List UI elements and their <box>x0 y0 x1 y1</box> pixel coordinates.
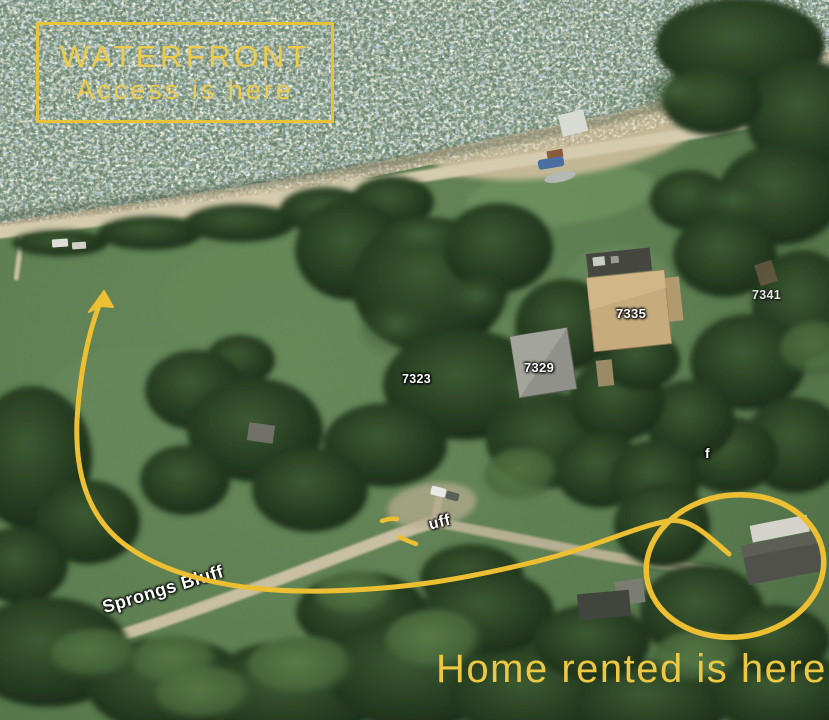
parked-trailer <box>52 238 69 247</box>
waterfront-annotation-box: WATERFRONT Access is here <box>36 22 334 123</box>
waterfront-label-line1: WATERFRONT <box>60 41 310 74</box>
home-rented-label: Home rented is here <box>436 647 827 692</box>
house-7329 <box>510 328 577 398</box>
parked-car <box>72 242 86 250</box>
satellite-map: Sprongs Bluff uff f 7335 7341 7323 7329 … <box>0 0 829 720</box>
waterfront-label-line2: Access is here <box>76 76 294 104</box>
house-7335-deck <box>596 359 615 387</box>
